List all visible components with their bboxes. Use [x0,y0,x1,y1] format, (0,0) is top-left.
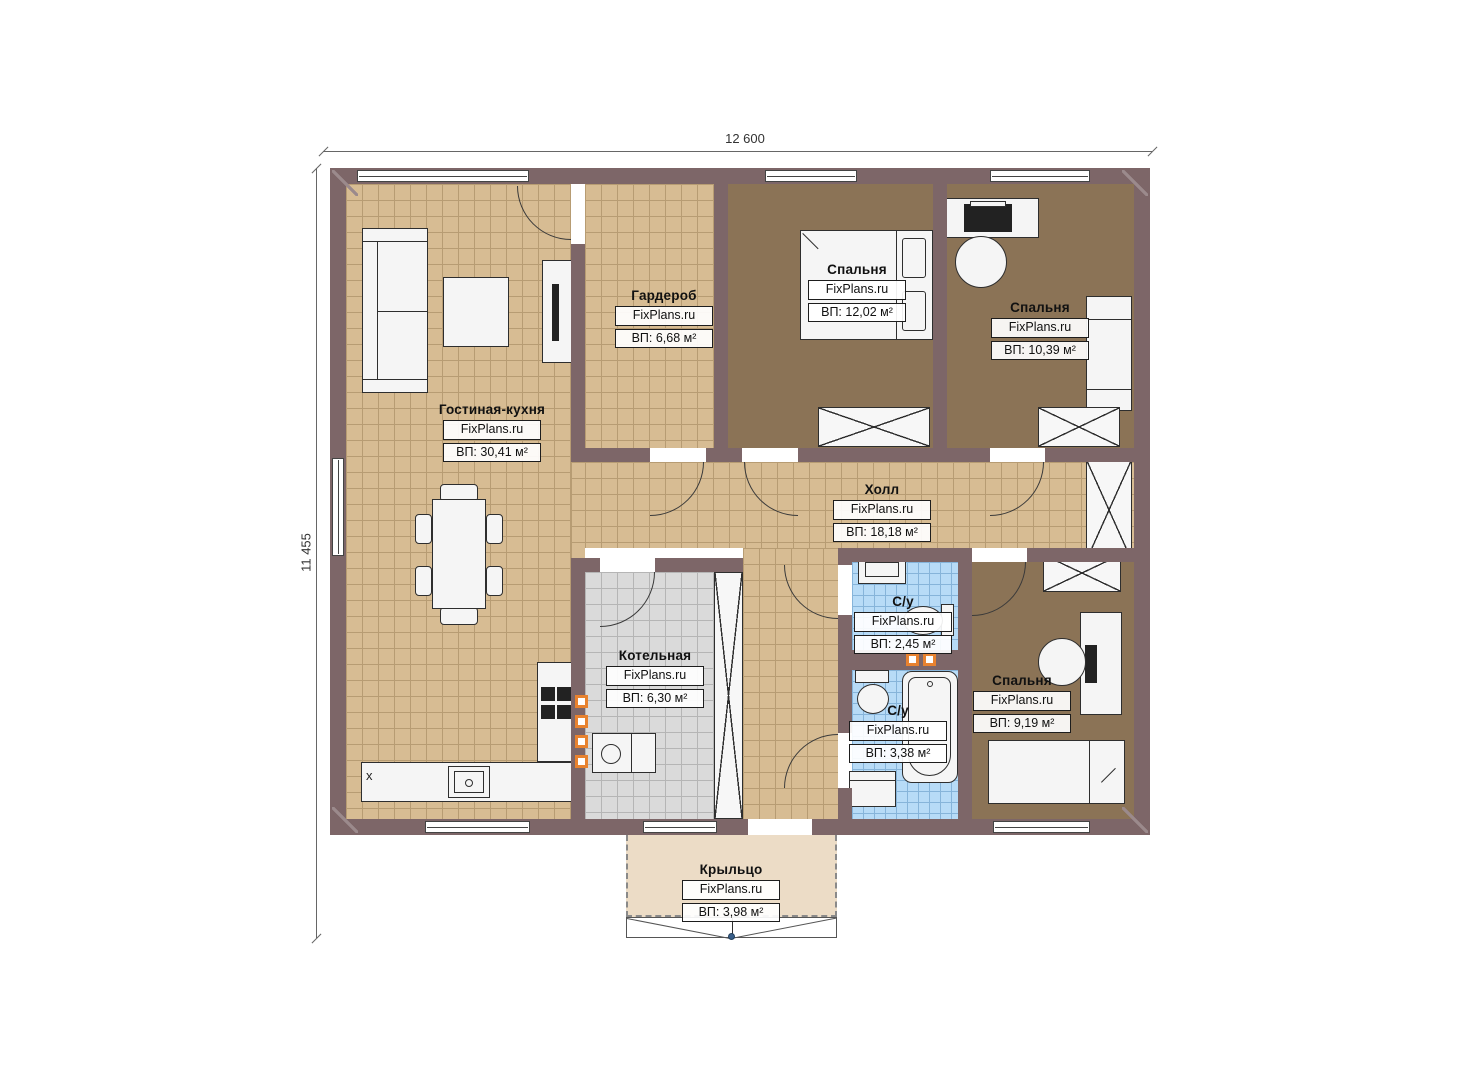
watermark-box: FixPlans.ru [615,306,713,326]
room-name: Гостиная-кухня [439,402,545,417]
room-label-bathroom-1: С/у FixPlans.ru ВП: 2,45 м² [813,594,993,654]
wall-vent [923,653,936,666]
room-name: Гардероб [631,288,696,303]
sofa-armrest [363,241,427,242]
area-box: ВП: 10,39 м² [991,341,1089,361]
sofa-cushion-line [377,311,427,312]
bed-pillow-line [1089,741,1090,803]
room-name: С/у [892,594,914,609]
dining-chair [486,514,503,544]
room-label-bedroom-1: Спальня FixPlans.ru ВП: 12,02 м² [767,262,947,322]
dimension-label-width: 12 600 [700,131,790,146]
stove-burner [541,705,555,719]
washer-panel-line [850,780,895,781]
boiler-divider [631,734,632,772]
dimension-line-width [323,151,1152,152]
stove-burner [541,687,555,701]
room-name: Холл [865,482,900,497]
corner-hatch [1122,170,1148,196]
area-box: ВП: 6,68 м² [615,329,713,349]
coffee-table [443,277,509,347]
wardrobe-cabinet [818,407,930,447]
wall-bathroom-west [838,548,852,565]
room-name: Спальня [992,673,1052,688]
room-name: Спальня [1010,300,1070,315]
area-box: ВП: 12,02 м² [808,303,906,323]
watermark-box: FixPlans.ru [854,612,952,632]
room-name: Спальня [827,262,887,277]
desk [937,198,1039,238]
dining-chair [415,514,432,544]
wall-boiler-north [655,558,743,572]
corner-hatch [332,170,358,196]
window-living-top [357,170,529,182]
room-label-bedroom-3: Спальня FixPlans.ru ВП: 9,19 м² [932,673,1112,733]
window-kitchen-bottom [425,821,530,833]
window-bedroom-1 [765,170,857,182]
watermark-box: FixPlans.ru [682,880,780,900]
window-bedroom-2 [990,170,1090,182]
wall-hall-north [706,448,742,462]
watermark-box: FixPlans.ru [991,318,1089,338]
area-box: ВП: 2,45 м² [854,635,952,655]
wall-vent [906,653,919,666]
room-label-wardrobe: Гардероб FixPlans.ru ВП: 6,68 м² [574,288,754,348]
watermark-box: FixPlans.ru [833,500,931,520]
boiler-unit [592,733,656,773]
fridge-placeholder-x: x [366,768,373,783]
printer [964,204,1012,232]
window-bedroom-3 [993,821,1090,833]
room-label-boiler: Котельная FixPlans.ru ВП: 6,30 м² [565,648,745,708]
wall-hall-south [845,548,958,562]
room-label-hall: Холл FixPlans.ru ВП: 18,18 м² [792,482,972,542]
corner-hatch [1122,807,1148,833]
dining-chair [415,566,432,596]
room-name: Котельная [619,648,691,663]
bed-blanket-line [1087,389,1131,390]
room-name: Крыльцо [700,862,763,877]
room-label-living-kitchen: Гостиная-кухня FixPlans.ru ВП: 30,41 м² [402,402,582,462]
room-label-bedroom-2: Спальня FixPlans.ru ВП: 10,39 м² [950,300,1130,360]
dimension-label-height: 11 455 [299,513,314,593]
area-box: ВП: 9,19 м² [973,714,1071,734]
area-box: ВП: 6,30 м² [606,689,704,709]
washing-machine [849,771,896,807]
window-living-left [332,458,344,556]
tv-stand [542,260,574,363]
window-boiler [643,821,717,833]
wall-hall-south [1027,548,1134,562]
wall-vent [575,755,588,768]
wall-hall-north [585,448,650,462]
toilet-tank [855,670,889,683]
blanket-fold [802,233,818,249]
wall-hall-north [1045,448,1134,462]
tv-screen [552,284,559,341]
watermark-box: FixPlans.ru [443,420,541,440]
wall-hall-north [798,448,990,462]
bed-single [988,740,1125,804]
area-box: ВП: 18,18 м² [833,523,931,543]
dining-chair [440,607,478,625]
wall-vent [575,735,588,748]
kitchen-sink [448,766,490,798]
watermark-box: FixPlans.ru [606,666,704,686]
corner-hatch [332,807,358,833]
sofa-armrest [363,379,427,380]
watermark-box: FixPlans.ru [973,691,1071,711]
dining-chair [486,566,503,596]
blanket-fold [1101,768,1116,783]
wall-exterior-right [1134,168,1150,835]
sink-basin [865,562,899,577]
floor-passage [571,462,585,558]
dining-table [432,499,486,609]
floor-plan: 12 600 11 455 x [0,0,1473,1080]
wall-bathroom-west [838,788,852,819]
room-name: С/у [887,703,909,718]
area-box: ВП: 30,41 м² [443,443,541,463]
area-box: ВП: 3,98 м² [682,903,780,923]
office-chair [955,236,1007,288]
boiler-dial [601,744,621,764]
wall-boiler-north [585,558,600,572]
porch-marker [728,933,735,940]
printer-tray [970,201,1006,207]
watermark-box: FixPlans.ru [808,280,906,300]
room-label-porch: Крыльцо FixPlans.ru ВП: 3,98 м² [641,862,821,922]
wardrobe-cabinet [1038,407,1120,447]
area-box: ВП: 3,38 м² [849,744,947,764]
sofa [362,228,428,393]
hall-closet [1086,460,1132,560]
dimension-line-height [316,168,317,938]
wall-vent [575,715,588,728]
sink-drain [465,779,473,787]
entry-door-opening [748,819,812,835]
